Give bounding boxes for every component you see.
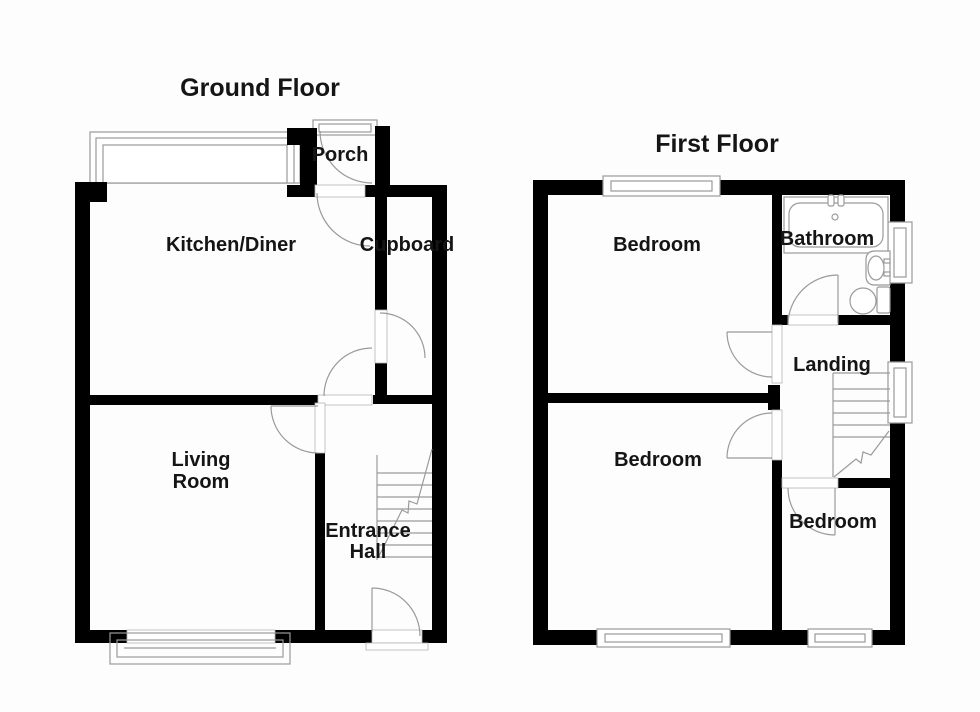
- front-door: [372, 588, 420, 636]
- room-label-bathroom: Bathroom: [780, 228, 874, 250]
- kitchen-hall-door-arc: [324, 348, 372, 396]
- first-floor-title: First Floor: [655, 130, 779, 158]
- bedroom-front-window: [603, 176, 720, 196]
- room-label-entrance-hall-line2: Hall: [350, 541, 387, 563]
- first-floor-plan: First Floor Bedroom Bathroom Landing Bed…: [533, 130, 912, 647]
- toilet-icon: [850, 287, 890, 314]
- bedroom-back-window: [597, 629, 730, 647]
- ground-floor-plan: Ground Floor Porch Kitchen/Diner Cupboar…: [75, 74, 454, 664]
- room-label-living-room-line2: Room: [173, 471, 230, 493]
- room-label-entrance-hall-line1: Entrance: [325, 520, 411, 542]
- staircase-first-floor: [833, 373, 890, 477]
- ground-floor-walls: [75, 126, 447, 643]
- living-room-door: [271, 406, 318, 453]
- room-label-bedroom-side: Bedroom: [789, 511, 877, 533]
- floorplan-canvas: Ground Floor Porch Kitchen/Diner Cupboar…: [0, 0, 980, 712]
- stairs-down-arrow: [834, 431, 889, 477]
- sink-icon: [866, 251, 890, 285]
- porch-entry-door-frame: [313, 120, 377, 135]
- room-label-landing: Landing: [793, 354, 871, 376]
- bathroom-window: [888, 222, 912, 283]
- room-label-living-room-line1: Living: [172, 449, 231, 471]
- room-label-cupboard: Cupboard: [360, 234, 454, 256]
- bedroom-front-door: [727, 332, 772, 377]
- room-label-porch: Porch: [312, 144, 369, 166]
- bedroom-back-door: [727, 413, 772, 458]
- ground-floor-title: Ground Floor: [180, 74, 340, 102]
- floorplan-drawing: Ground Floor Porch Kitchen/Diner Cupboar…: [0, 0, 980, 712]
- room-label-bedroom-back: Bedroom: [614, 449, 702, 471]
- room-label-bedroom-front: Bedroom: [613, 234, 701, 256]
- room-label-kitchen-diner: Kitchen/Diner: [166, 234, 296, 256]
- landing-stairs-window: [888, 362, 912, 423]
- bedroom-side-window: [808, 629, 872, 647]
- living-room-bay-window: [110, 630, 290, 664]
- kitchen-bay-window: [90, 132, 300, 183]
